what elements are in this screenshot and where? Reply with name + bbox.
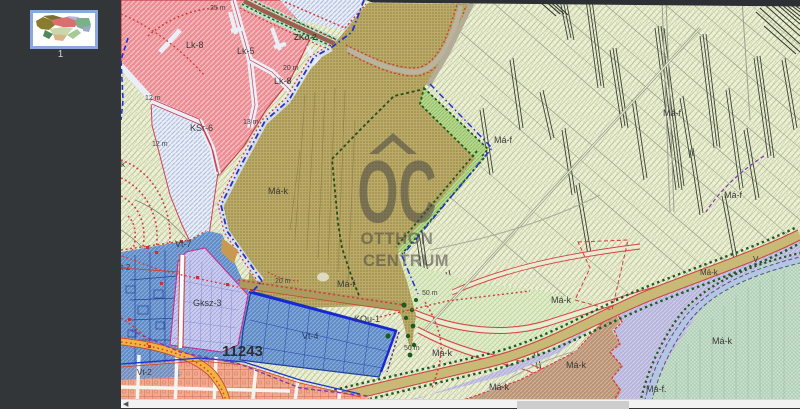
svg-text:Má-f.: Má-f.: [646, 384, 667, 394]
svg-text:Má-k: Má-k: [551, 295, 571, 305]
svg-text:ZKö-2: ZKö-2: [294, 33, 317, 42]
svg-text:Vt-4: Vt-4: [302, 331, 319, 341]
svg-text:Má-f: Má-f: [724, 190, 742, 200]
svg-text:OTTHON: OTTHON: [361, 230, 434, 248]
svg-text:Má-f: Má-f: [663, 108, 681, 118]
svg-text:20 m: 20 m: [283, 65, 299, 72]
svg-text:Lk-8: Lk-8: [274, 76, 292, 86]
svg-text:13 m: 13 m: [243, 119, 259, 126]
svg-text:Má-k: Má-k: [712, 336, 732, 346]
svg-text:Má-k: Má-k: [700, 268, 719, 277]
svg-text:Má-k: Má-k: [268, 186, 288, 196]
svg-text:V: V: [753, 255, 759, 264]
svg-text:Vt-2: Vt-2: [137, 368, 152, 377]
svg-text:Vt-7: Vt-7: [175, 239, 192, 249]
svg-text:Gksz-3: Gksz-3: [193, 298, 222, 308]
svg-text:Má-f: Má-f: [494, 135, 512, 145]
svg-text:25 m: 25 m: [210, 5, 226, 12]
svg-text:Lk-8: Lk-8: [186, 40, 204, 50]
svg-text:11243: 11243: [222, 343, 263, 360]
svg-text:Má-k: Má-k: [489, 382, 509, 392]
svg-text:t-2: t-2: [121, 263, 131, 272]
svg-text:20 m: 20 m: [275, 278, 291, 285]
svg-text:CENTRUM: CENTRUM: [363, 252, 449, 270]
svg-text:12 m: 12 m: [152, 141, 168, 148]
svg-text:OC: OC: [357, 143, 436, 241]
svg-text:KOu-1: KOu-1: [354, 314, 380, 324]
svg-text:KSr-6: KSr-6: [190, 123, 213, 133]
svg-text:Má-f: Má-f: [337, 279, 355, 289]
svg-text:12 m: 12 m: [145, 95, 161, 102]
svg-text:Má-k: Má-k: [566, 360, 586, 370]
svg-text:50 m: 50 m: [404, 345, 420, 352]
svg-text:Lk-5: Lk-5: [237, 46, 255, 56]
svg-text:50 m: 50 m: [422, 290, 438, 297]
svg-text:Má-k: Má-k: [432, 348, 452, 358]
